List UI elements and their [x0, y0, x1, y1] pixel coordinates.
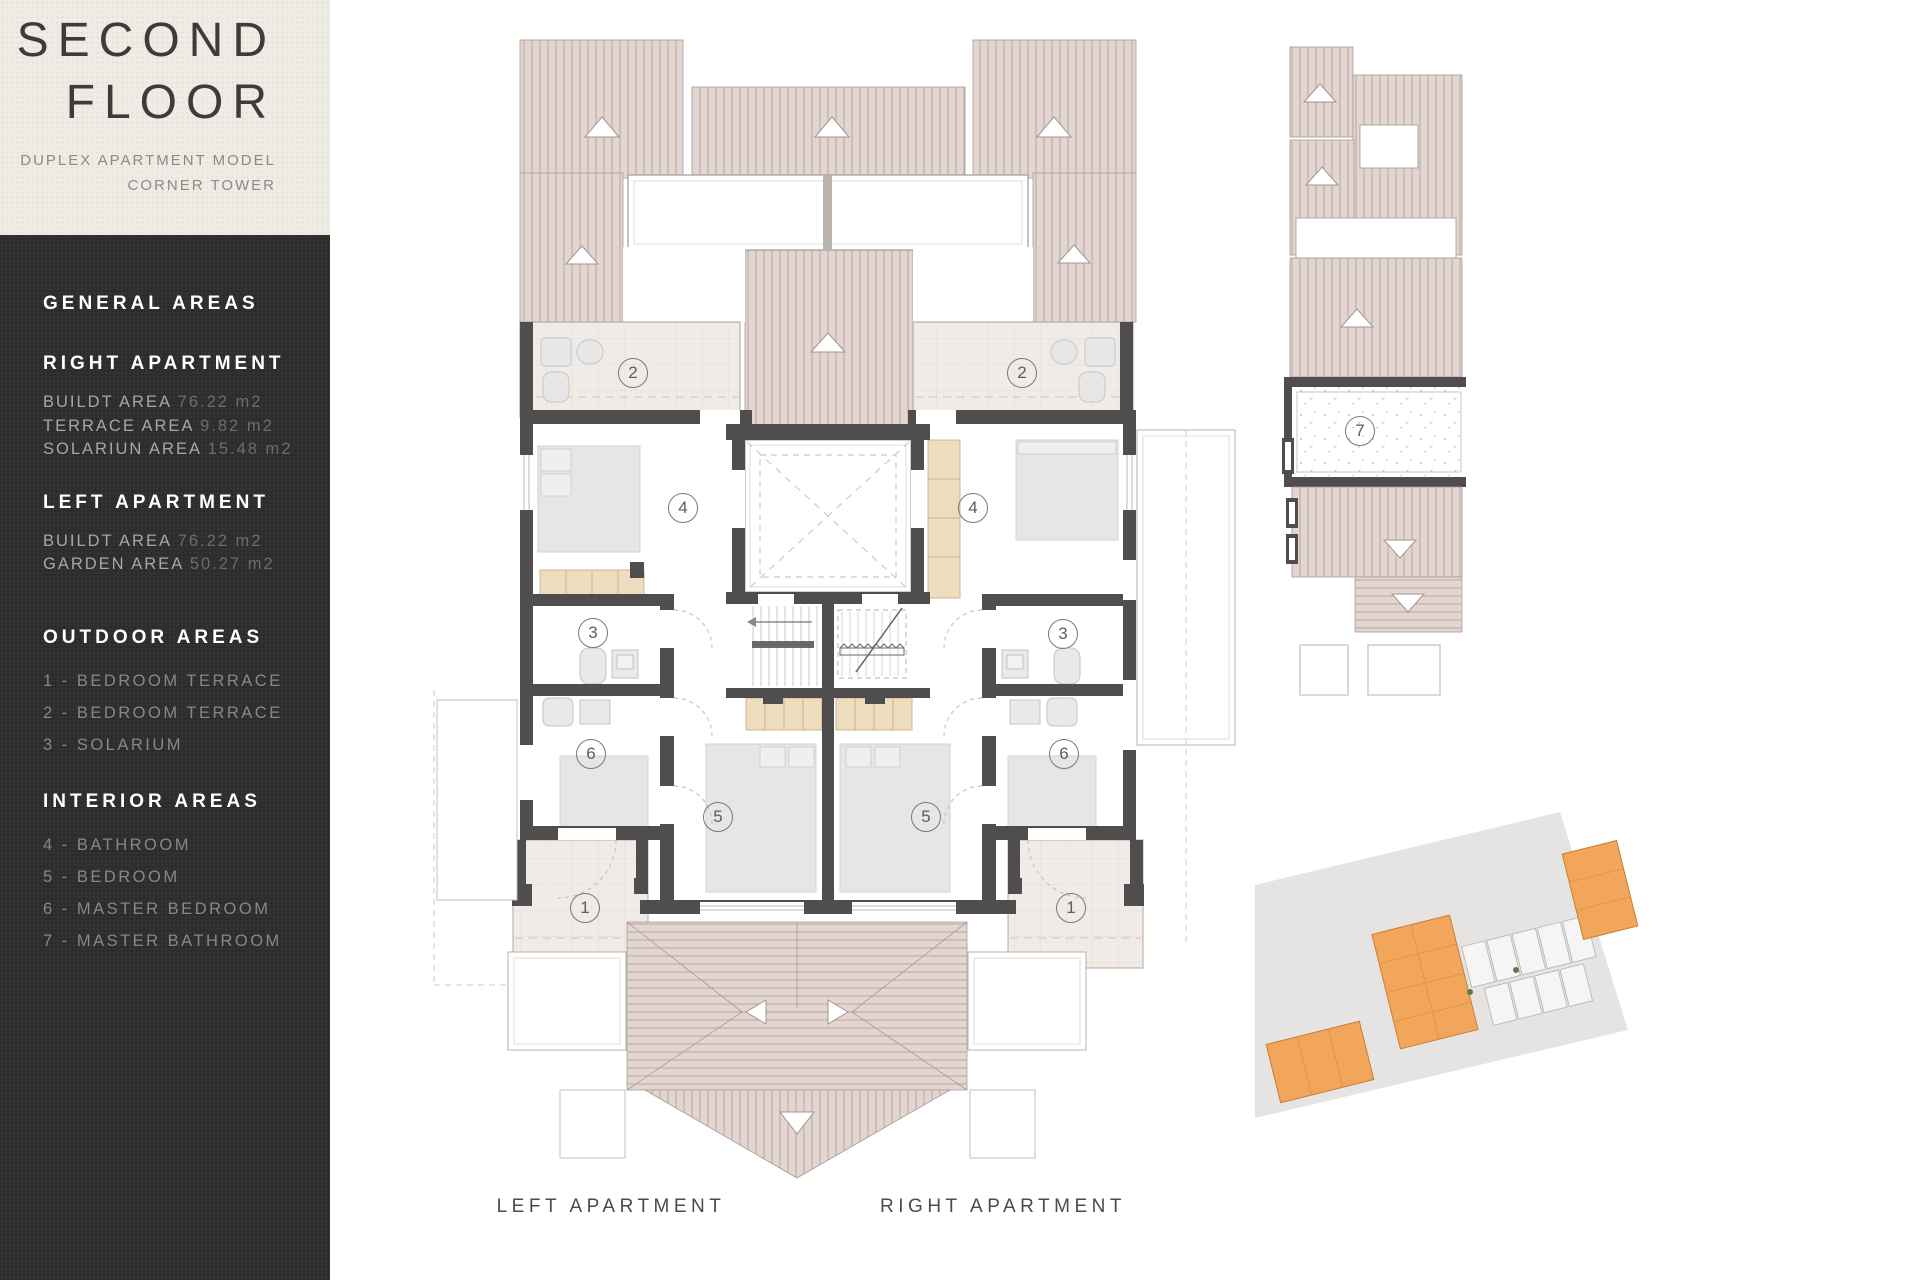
- left-apartment-label: LEFT APARTMENT: [497, 1196, 726, 1218]
- roof-solarium-plan: [1282, 47, 1466, 695]
- room-marker: 1: [1056, 893, 1086, 923]
- room-marker: 7: [1345, 416, 1375, 446]
- room-marker: 4: [668, 493, 698, 523]
- room-marker: 5: [703, 802, 733, 832]
- right-apartment-label: RIGHT APARTMENT: [880, 1196, 1126, 1218]
- room-marker: 3: [1048, 619, 1078, 649]
- room-marker: 2: [618, 358, 648, 388]
- main-floor-plan: [434, 40, 1235, 1178]
- floor-plan-drawing: [0, 0, 1920, 1280]
- room-marker: 5: [911, 802, 941, 832]
- room-marker: 2: [1007, 358, 1037, 388]
- room-marker: 6: [576, 739, 606, 769]
- presentation-board: SECOND FLOOR DUPLEX APARTMENT MODELCORNE…: [0, 0, 1920, 1280]
- room-marker: 1: [570, 893, 600, 923]
- room-marker: 4: [958, 493, 988, 523]
- site-plan: [1255, 812, 1638, 1118]
- room-marker: 6: [1049, 739, 1079, 769]
- room-marker: 3: [578, 618, 608, 648]
